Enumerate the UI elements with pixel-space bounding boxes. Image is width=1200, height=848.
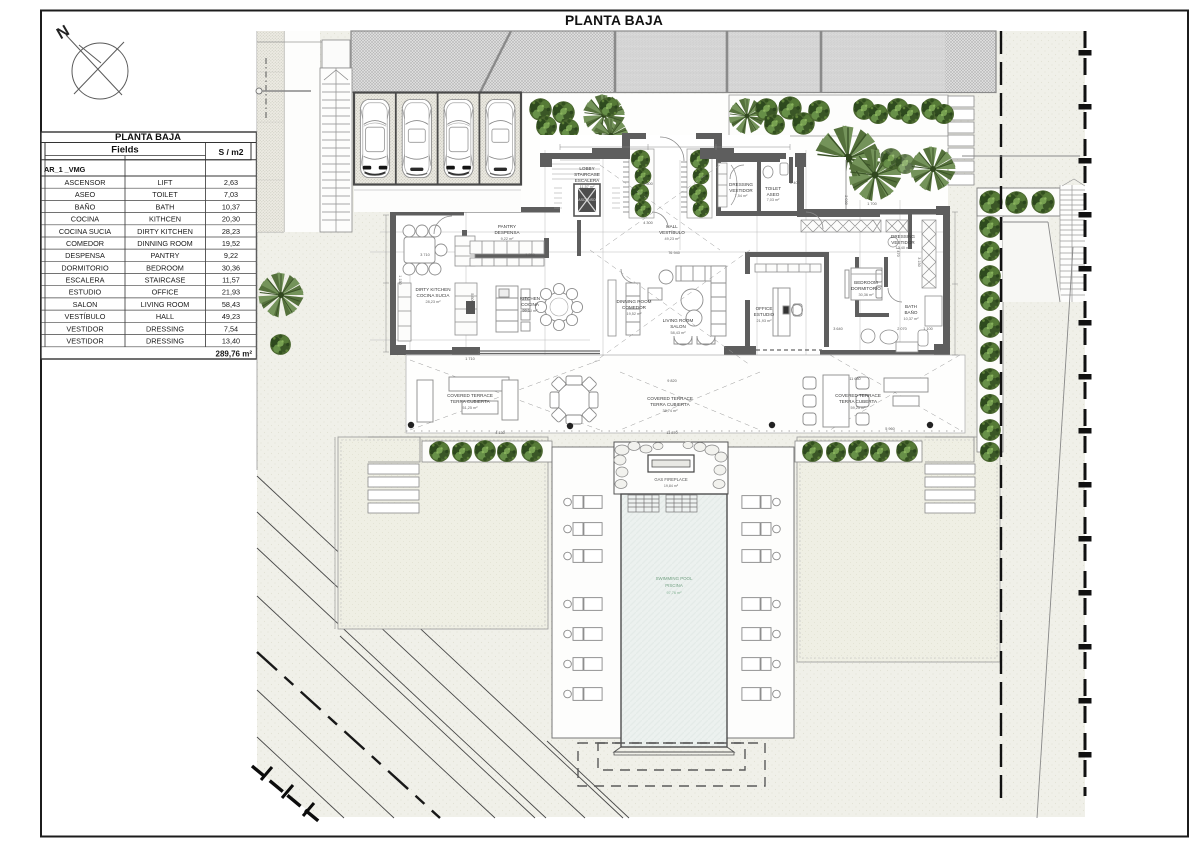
svg-text:28,23: 28,23	[222, 227, 240, 236]
svg-text:20,30: 20,30	[222, 215, 240, 224]
svg-text:DORMITORIO: DORMITORIO	[851, 286, 881, 291]
svg-text:VESTIDOR: VESTIDOR	[891, 240, 915, 245]
svg-text:11 870: 11 870	[666, 431, 677, 435]
svg-text:ESCALERA: ESCALERA	[575, 178, 600, 183]
svg-text:1 700: 1 700	[867, 202, 877, 206]
svg-text:SALON: SALON	[670, 324, 686, 329]
svg-text:3 150: 3 150	[917, 257, 921, 267]
svg-text:19,84 m²: 19,84 m²	[664, 484, 679, 488]
svg-text:1 150: 1 150	[398, 275, 402, 285]
svg-text:19,52: 19,52	[222, 239, 240, 248]
svg-text:ASEO: ASEO	[75, 190, 96, 199]
svg-text:7 470: 7 470	[896, 247, 900, 257]
svg-text:STAIRCASE: STAIRCASE	[145, 276, 186, 285]
svg-text:11,57: 11,57	[222, 276, 240, 285]
svg-text:58,43: 58,43	[222, 300, 240, 309]
svg-text:3 640: 3 640	[833, 327, 843, 331]
svg-text:28,23 m²: 28,23 m²	[426, 300, 442, 304]
svg-text:DESPENSA: DESPENSA	[65, 251, 105, 260]
svg-text:9 820: 9 820	[667, 379, 677, 383]
svg-text:5 960: 5 960	[885, 427, 895, 431]
svg-text:BEDROOM: BEDROOM	[854, 280, 878, 285]
svg-text:30,36: 30,36	[222, 263, 240, 272]
svg-text:LIFT: LIFT	[158, 178, 174, 187]
svg-text:BAÑO: BAÑO	[904, 309, 917, 315]
svg-text:PANTRY: PANTRY	[498, 224, 516, 229]
svg-text:BEDROOM: BEDROOM	[146, 263, 184, 272]
svg-text:2,63: 2,63	[224, 178, 238, 187]
svg-text:COCINA SUCIA: COCINA SUCIA	[59, 227, 111, 236]
svg-text:59,25 m²: 59,25 m²	[851, 406, 867, 410]
svg-text:DRESSING: DRESSING	[729, 182, 753, 187]
svg-text:97,76 m²: 97,76 m²	[667, 591, 683, 595]
svg-text:COCINA: COCINA	[71, 215, 100, 224]
svg-text:19,52 m²: 19,52 m²	[627, 312, 643, 316]
svg-text:BATH: BATH	[156, 202, 175, 211]
svg-text:ESTUDIO: ESTUDIO	[754, 312, 775, 317]
svg-text:30,36 m²: 30,36 m²	[859, 293, 875, 297]
svg-text:10,37 m²: 10,37 m²	[904, 317, 920, 321]
svg-text:PLANTA BAJA: PLANTA BAJA	[115, 132, 181, 143]
svg-text:DINNING ROOM: DINNING ROOM	[617, 299, 652, 304]
svg-text:21,93 m²: 21,93 m²	[757, 319, 773, 323]
svg-text:10,37: 10,37	[222, 202, 240, 211]
svg-text:9,22 m²: 9,22 m²	[501, 237, 515, 241]
svg-text:ESTUDIO: ESTUDIO	[69, 288, 102, 297]
svg-text:9,22: 9,22	[224, 251, 238, 260]
svg-text:4 130: 4 130	[495, 431, 505, 435]
svg-text:DESPENSA: DESPENSA	[494, 230, 520, 235]
svg-text:DRESSING: DRESSING	[146, 324, 184, 333]
svg-text:VESTIDOR: VESTIDOR	[729, 188, 753, 193]
svg-text:HALL: HALL	[666, 224, 678, 229]
svg-text:ASCENSOR: ASCENSOR	[65, 178, 106, 187]
svg-text:4 500: 4 500	[643, 182, 653, 186]
svg-text:20,30 m²: 20,30 m²	[523, 309, 539, 313]
svg-text:TERRA CUBIERTA: TERRA CUBIERTA	[450, 399, 490, 404]
svg-text:51,25 m²: 51,25 m²	[463, 406, 479, 410]
svg-text:TOILET: TOILET	[152, 190, 178, 199]
svg-text:TERRA CUBERTA: TERRA CUBERTA	[839, 399, 878, 404]
svg-text:SWIMMING POOL: SWIMMING POOL	[656, 576, 693, 581]
svg-text:AR_1 _VMG: AR_1 _VMG	[44, 165, 86, 174]
svg-text:11,57 m²: 11,57 m²	[580, 185, 595, 189]
svg-text:VESTIDOR: VESTIDOR	[66, 324, 103, 333]
svg-text:COCINA SUCIA: COCINA SUCIA	[417, 293, 451, 298]
svg-text:OFFICE: OFFICE	[152, 288, 179, 297]
svg-text:LIVING ROOM: LIVING ROOM	[141, 300, 190, 309]
svg-text:4 300: 4 300	[643, 221, 653, 225]
svg-text:DORMITORIO: DORMITORIO	[61, 263, 109, 272]
svg-text:DRESSING: DRESSING	[146, 337, 184, 346]
svg-text:1 100: 1 100	[923, 327, 933, 331]
svg-text:7,03: 7,03	[224, 190, 238, 199]
svg-text:DIRTY KITCHEN: DIRTY KITCHEN	[137, 227, 193, 236]
svg-text:BATH: BATH	[905, 304, 917, 309]
svg-text:Fields: Fields	[111, 145, 138, 156]
svg-text:ASCENSO: ASCENSO	[578, 198, 596, 202]
svg-text:5 500: 5 500	[470, 293, 474, 303]
svg-text:2 070: 2 070	[897, 327, 907, 331]
svg-text:OFFICE: OFFICE	[756, 306, 773, 311]
svg-text:289,76 m²: 289,76 m²	[216, 350, 253, 359]
svg-text:13,40: 13,40	[222, 337, 240, 346]
svg-text:ESCALERA: ESCALERA	[66, 276, 105, 285]
svg-text:TERRA CUBIERTA: TERRA CUBIERTA	[650, 402, 690, 407]
svg-text:38,74 m²: 38,74 m²	[663, 409, 679, 413]
svg-text:COVERED TERRACE: COVERED TERRACE	[447, 393, 493, 398]
svg-text:VESTIDOR: VESTIDOR	[66, 337, 103, 346]
svg-text:49,23: 49,23	[222, 312, 240, 321]
svg-text:COMEDOR: COMEDOR	[66, 239, 104, 248]
svg-text:COVERED TERRACE: COVERED TERRACE	[647, 396, 693, 401]
svg-text:KITCHEN: KITCHEN	[520, 296, 540, 301]
svg-text:7,54 m²: 7,54 m²	[735, 194, 749, 198]
svg-text:S / m2: S / m2	[218, 147, 243, 157]
svg-text:PLANTA BAJA: PLANTA BAJA	[565, 13, 663, 28]
svg-text:DIRTY KITCHEN: DIRTY KITCHEN	[415, 287, 450, 292]
svg-text:COVERED TERRACE: COVERED TERRACE	[835, 393, 881, 398]
svg-text:VESTÍBULO: VESTÍBULO	[659, 229, 685, 235]
svg-text:ASEO: ASEO	[767, 192, 780, 197]
svg-text:SALON: SALON	[73, 300, 98, 309]
svg-text:GAS FIREPLACE: GAS FIREPLACE	[654, 477, 687, 482]
svg-text:PANTRY: PANTRY	[151, 251, 180, 260]
svg-text:LIVING ROOM: LIVING ROOM	[663, 318, 694, 323]
svg-text:BAÑO: BAÑO	[75, 202, 96, 211]
svg-text:STAIRCASE: STAIRCASE	[574, 172, 600, 177]
svg-text:COMEDOR: COMEDOR	[622, 305, 647, 310]
svg-text:7,03 m²: 7,03 m²	[767, 198, 781, 202]
svg-text:2 400: 2 400	[790, 181, 800, 185]
svg-text:2 030: 2 030	[844, 195, 848, 205]
svg-text:TOILET: TOILET	[765, 186, 781, 191]
svg-text:7,54: 7,54	[224, 324, 238, 333]
svg-text:21,93: 21,93	[222, 288, 240, 297]
svg-text:1 710: 1 710	[465, 357, 475, 361]
svg-text:DRESSING: DRESSING	[891, 234, 915, 239]
svg-text:3 710: 3 710	[420, 253, 430, 257]
svg-text:58,43 m²: 58,43 m²	[671, 331, 687, 335]
svg-text:HALL: HALL	[156, 312, 174, 321]
svg-text:1 250: 1 250	[525, 253, 535, 257]
svg-text:VESTÍBULO: VESTÍBULO	[65, 312, 106, 321]
svg-text:11 630: 11 630	[849, 377, 860, 381]
svg-text:KITHCEN: KITHCEN	[149, 215, 181, 224]
svg-text:DINNING ROOM: DINNING ROOM	[137, 239, 193, 248]
svg-text:LOBBY: LOBBY	[579, 166, 594, 171]
svg-text:76 940: 76 940	[668, 251, 680, 255]
svg-text:COCINA: COCINA	[521, 302, 540, 307]
svg-text:PISCINA: PISCINA	[665, 583, 683, 588]
svg-text:49,23 m²: 49,23 m²	[665, 237, 681, 241]
